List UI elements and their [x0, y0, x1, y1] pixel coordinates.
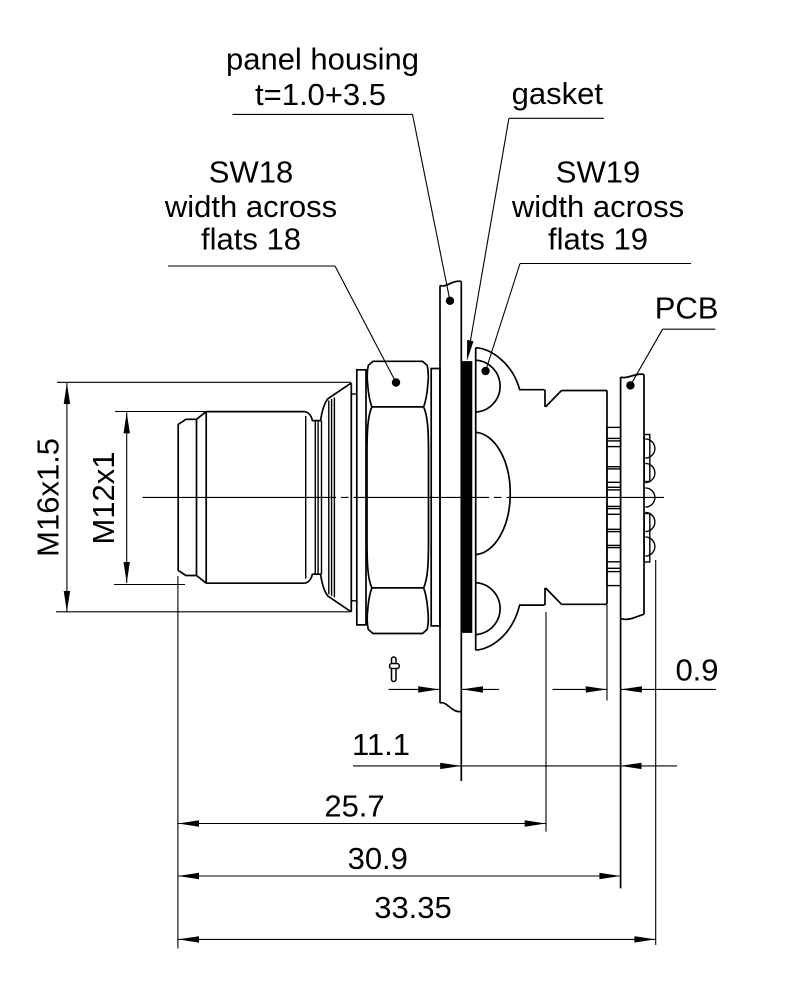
svg-text:11.1: 11.1: [352, 727, 410, 762]
svg-text:25.7: 25.7: [324, 789, 384, 824]
svg-text:PCB: PCB: [655, 290, 719, 325]
svg-text:flats 18: flats 18: [201, 222, 301, 257]
svg-text:SW19: SW19: [556, 154, 640, 189]
svg-text:0.9: 0.9: [675, 653, 718, 688]
svg-text:panel housing: panel housing: [226, 41, 419, 76]
svg-text:gasket: gasket: [512, 76, 604, 111]
svg-text:SW18: SW18: [209, 154, 293, 189]
svg-text:M12x1: M12x1: [86, 451, 121, 544]
svg-text:width across: width across: [511, 189, 684, 224]
svg-text:33.35: 33.35: [374, 890, 452, 925]
svg-text:flats 19: flats 19: [548, 222, 648, 257]
svg-text:M16x1.5: M16x1.5: [30, 438, 65, 557]
svg-text:30.9: 30.9: [348, 841, 408, 876]
svg-text:t=1.0+3.5: t=1.0+3.5: [255, 77, 386, 112]
svg-text:width across: width across: [164, 189, 337, 224]
